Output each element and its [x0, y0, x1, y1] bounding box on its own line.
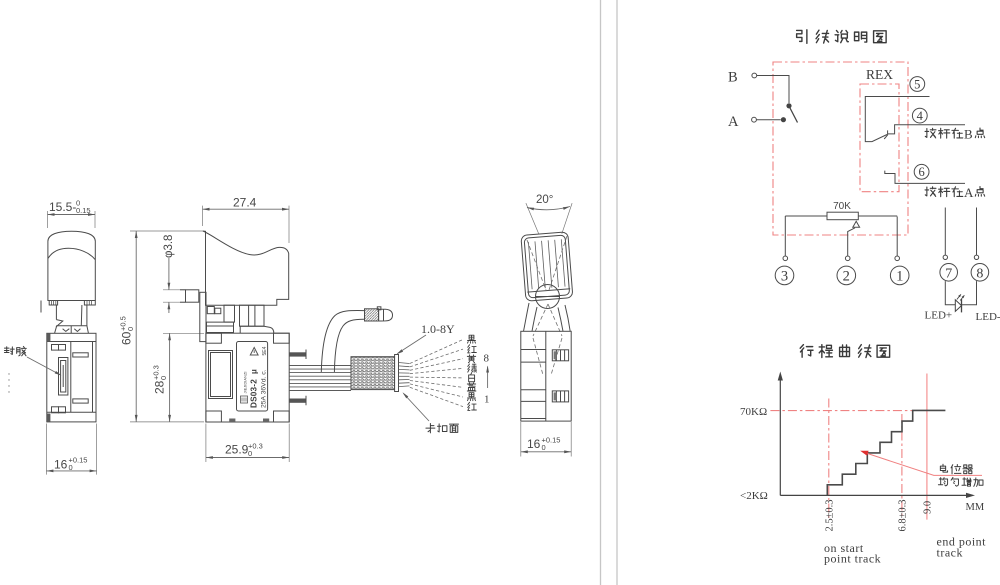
svg-text:B: B: [964, 127, 973, 142]
svg-text:<2KΩ: <2KΩ: [740, 490, 768, 502]
svg-text:0.15: 0.15: [76, 206, 91, 215]
svg-text:B: B: [728, 70, 738, 86]
svg-text:0: 0: [69, 463, 73, 472]
svg-text:7: 7: [945, 266, 952, 281]
svg-text:MM: MM: [966, 502, 985, 513]
svg-text:60: 60: [120, 331, 134, 345]
svg-text:0: 0: [159, 376, 168, 380]
svg-text:DS03-2 μ: DS03-2 μ: [250, 369, 259, 408]
svg-text:8: 8: [484, 353, 490, 365]
svg-text:16: 16: [54, 458, 68, 472]
svg-text:25.9: 25.9: [225, 443, 249, 457]
svg-text:27.4: 27.4: [233, 196, 257, 210]
svg-text:φ3.8: φ3.8: [163, 235, 175, 258]
svg-text:20°: 20°: [536, 194, 553, 206]
svg-text:JIEJIDIANZI: JIEJIDIANZI: [243, 371, 248, 393]
svg-text:1: 1: [484, 394, 490, 406]
svg-text:2.5±0.3: 2.5±0.3: [825, 499, 836, 531]
svg-text:0: 0: [126, 327, 135, 331]
svg-text:3: 3: [781, 269, 788, 285]
svg-text:1: 1: [896, 269, 903, 285]
svg-text:25A 36Vd. c.: 25A 36Vd. c.: [261, 369, 268, 408]
svg-text:9.0: 9.0: [923, 501, 934, 514]
svg-text:point track: point track: [824, 552, 881, 566]
svg-text:70K: 70K: [833, 201, 851, 212]
svg-text:70KΩ: 70KΩ: [740, 406, 767, 418]
svg-text:6.8±0.3: 6.8±0.3: [898, 499, 909, 531]
svg-text:A: A: [728, 114, 739, 130]
svg-text:4: 4: [917, 109, 924, 123]
svg-text:0: 0: [542, 443, 546, 452]
svg-text:5: 5: [914, 77, 920, 91]
svg-text:28: 28: [153, 380, 167, 394]
svg-text:2: 2: [843, 269, 850, 285]
svg-text:track: track: [937, 546, 963, 560]
svg-text:6: 6: [918, 165, 924, 179]
svg-text:LED+: LED+: [925, 310, 953, 322]
svg-text:8: 8: [976, 266, 983, 281]
svg-text:16: 16: [527, 437, 541, 451]
svg-text:15.5-: 15.5-: [49, 200, 76, 214]
svg-text:A: A: [964, 185, 974, 200]
svg-text:REX: REX: [866, 67, 893, 82]
svg-text:0: 0: [248, 449, 252, 458]
svg-text:LED-: LED-: [976, 311, 1000, 323]
svg-text:1.0-8Y: 1.0-8Y: [421, 322, 455, 336]
svg-text:5E4: 5E4: [262, 346, 268, 355]
